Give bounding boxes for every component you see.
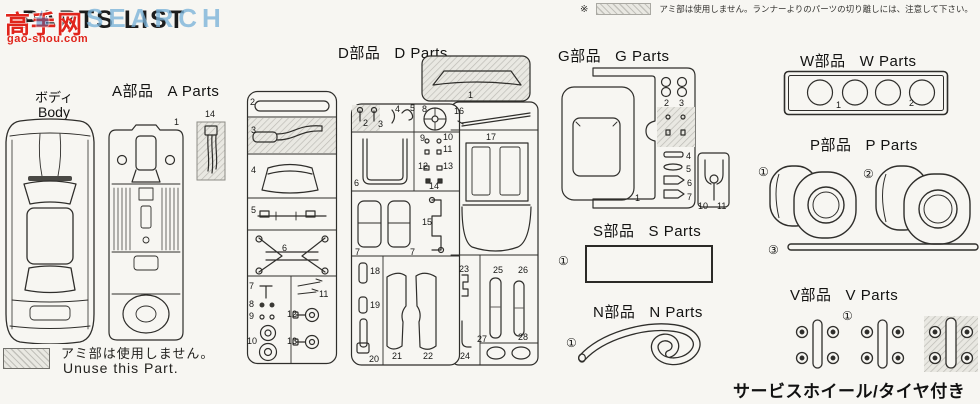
g-runner-drawing: [556, 66, 736, 214]
part-number: 11: [319, 290, 328, 299]
part-number: 15: [422, 218, 432, 227]
part-number: 16: [454, 107, 464, 116]
part-number: 17: [486, 133, 496, 142]
part-number: 28: [518, 333, 528, 342]
s-parts-label: S部品S Parts: [593, 220, 701, 241]
part-number: ①: [758, 166, 769, 178]
part-number: 23: [459, 265, 469, 274]
watermark-site: gao-shou.com: [7, 33, 88, 45]
part-number: ③: [768, 244, 779, 256]
part-number: 8: [422, 105, 427, 114]
part-number: 22: [423, 352, 433, 361]
part-number: 6: [687, 179, 692, 188]
part-number: ②: [863, 168, 874, 180]
part-number: 4: [251, 166, 256, 175]
d-runner-2-drawing: [350, 55, 540, 367]
d-runner-1-drawing: [246, 90, 338, 365]
s-label-jp: S部品: [593, 223, 635, 240]
part-number: 7: [410, 248, 415, 257]
a-runner: 1: [106, 118, 186, 344]
part-number: 3: [251, 126, 256, 135]
part-number: 7: [687, 193, 692, 202]
v-section: V部品V Parts ①: [768, 282, 980, 377]
part-number: 13: [287, 337, 297, 346]
part-number: 3: [378, 120, 383, 129]
part-number: 13: [443, 162, 453, 171]
a-label-jp: A部品: [112, 83, 154, 100]
thumbs-up-icon: [30, 8, 52, 30]
body-label-jp: ボディ: [12, 91, 96, 105]
car-body-illustration: [0, 114, 100, 344]
header-note: ※ アミ部は使用しません。ランナーよりのパーツの切り離しには、注意して下さい。: [580, 3, 973, 15]
part-number: 19: [370, 301, 380, 310]
part-number: 3: [679, 99, 684, 108]
part-number: 2: [909, 99, 914, 108]
part-number: 10: [698, 202, 708, 211]
part-number: 4: [395, 105, 400, 114]
part-number: 5: [251, 206, 256, 215]
p-section: P部品P Parts ① ② ③: [748, 132, 980, 260]
g-label-en: G Parts: [615, 48, 669, 65]
part-number: 5: [686, 165, 691, 174]
s-part-drawing: [585, 245, 713, 283]
g-parts-label: G部品G Parts: [558, 45, 670, 66]
v-label-jp: V部品: [790, 287, 832, 304]
part-number: 24: [460, 352, 470, 361]
part-number: 12: [418, 162, 428, 171]
part-number: 1: [836, 101, 841, 110]
part-number: 2: [363, 119, 368, 128]
g-section: G部品G Parts 1 2 3 4 5 6 7 10 11: [556, 44, 738, 216]
part-number: 1: [468, 91, 473, 100]
n-hose-drawing: [574, 316, 706, 368]
part-number: 5: [410, 104, 415, 113]
parts-list-page: { "watermark": { "logo": "高手网", "site": …: [0, 0, 980, 404]
w-parts-label: W部品W Parts: [800, 50, 917, 71]
v-parts-drawing: [776, 316, 980, 374]
d-runner-2: 1 2 3 4 5 8 9 10 11 12 13 14 6 7 7 15 16…: [350, 55, 540, 367]
s-section: S部品S Parts ①: [556, 218, 718, 288]
part-number: 8: [249, 300, 254, 309]
a-runner-unused-part: 14: [196, 110, 226, 184]
part-number: 9: [420, 134, 425, 143]
a-runner-drawing: [106, 122, 186, 344]
part-number: 27: [477, 335, 487, 344]
service-wheel-note: サービスホイール/タイヤ付き: [733, 377, 965, 402]
w-label-jp: W部品: [800, 53, 846, 70]
a-parts-label: A部品A Parts: [112, 80, 219, 101]
part-number: ①: [558, 255, 569, 267]
part-number: 12: [287, 310, 297, 319]
note-text: アミ部は使用しません。ランナーよりのパーツの切り離しには、注意して下さい。: [659, 3, 972, 15]
car-body-topview: [0, 114, 100, 344]
part-number: 2: [664, 99, 669, 108]
n-section: N部品N Parts ①: [556, 298, 716, 370]
part-number: 25: [493, 266, 503, 275]
hatched-area-sample: [3, 348, 50, 369]
w-section: W部品W Parts 1 2: [780, 46, 952, 120]
part-number: 2: [250, 98, 255, 107]
v-label-en: V Parts: [846, 287, 899, 304]
part-number: 4: [686, 152, 691, 161]
part-number: 11: [443, 145, 452, 154]
d-runner-1: 2 3 4 5 6 7 8 9 10 11 12 13: [246, 90, 338, 365]
unused-part-legend: アミ部は使用しません。 Unuse this Part.: [2, 342, 252, 384]
part-number: 6: [282, 244, 287, 253]
part-number: 9: [249, 312, 254, 321]
legend-text-en: Unuse this Part.: [63, 360, 179, 376]
part-number: 6: [354, 179, 359, 188]
a-label-en: A Parts: [168, 83, 220, 100]
part-number: 18: [370, 267, 380, 276]
part-number: 14: [205, 110, 215, 119]
part-number: 7: [355, 248, 360, 257]
part-number: 20: [369, 355, 379, 364]
a-part14-drawing: [196, 121, 226, 181]
note-reference-mark: ※: [580, 4, 588, 15]
g-label-jp: G部品: [558, 48, 601, 65]
part-number: 21: [392, 352, 402, 361]
part-number: 10: [443, 133, 453, 142]
watermark-overlay-text: SEARCH: [86, 3, 226, 34]
part-number: 14: [429, 182, 439, 191]
hatched-area-sample: [596, 3, 651, 15]
part-number: 7: [249, 282, 254, 291]
part-number: 1: [635, 194, 640, 203]
part-number: 26: [518, 266, 528, 275]
v-parts-label: V部品V Parts: [790, 284, 898, 305]
w-runner-drawing: [783, 70, 949, 116]
s-label-en: S Parts: [649, 223, 702, 240]
part-number: 11: [717, 202, 726, 211]
w-label-en: W Parts: [860, 53, 917, 70]
